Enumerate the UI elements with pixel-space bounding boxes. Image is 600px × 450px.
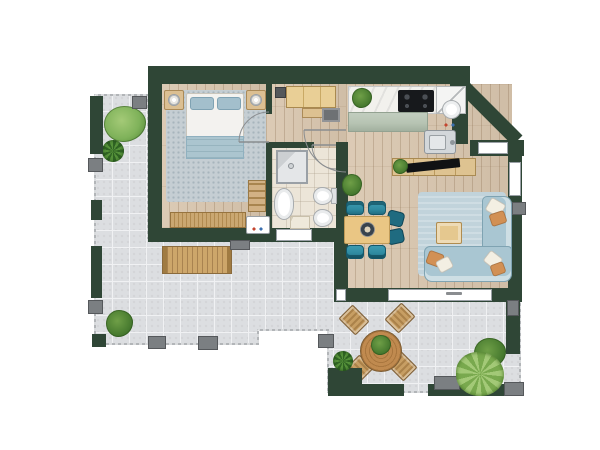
terrace-pillar-left-2 bbox=[88, 300, 103, 314]
terrace-pillar-top bbox=[132, 96, 147, 109]
dining-chair-4 bbox=[368, 245, 386, 259]
dining-chair-3 bbox=[346, 245, 364, 259]
wardrobe bbox=[286, 86, 336, 108]
terrace-pillar-bottom-1 bbox=[148, 336, 166, 349]
lower-pillar-topright bbox=[507, 300, 519, 316]
terrace-wall-left-2 bbox=[91, 200, 102, 220]
bed-pillow-left bbox=[190, 97, 214, 110]
dresser bbox=[170, 212, 246, 228]
bathmat bbox=[290, 216, 310, 229]
wall-bathroom-top bbox=[266, 142, 314, 148]
window-living-small bbox=[336, 289, 346, 301]
terrace-pillar-under-wall bbox=[230, 240, 250, 250]
floor-plan bbox=[0, 0, 600, 450]
terrace-wall-left-1 bbox=[90, 96, 103, 154]
dining-chair-2 bbox=[368, 201, 386, 215]
faucet-symbols bbox=[442, 121, 458, 130]
window-living-large bbox=[388, 289, 492, 301]
dining-chair-1 bbox=[346, 201, 364, 215]
window-bathroom bbox=[276, 229, 312, 241]
kitchen-sink bbox=[424, 130, 456, 154]
bed-pillow-right bbox=[217, 97, 241, 110]
wall-bedroom-right bbox=[266, 84, 272, 114]
lamp-left bbox=[168, 94, 180, 106]
hall-bench bbox=[302, 108, 324, 118]
lamp-right bbox=[250, 94, 262, 106]
terrace-pillar-bottom-2 bbox=[198, 336, 218, 350]
wall-left bbox=[148, 66, 162, 242]
terrace-bench bbox=[162, 246, 232, 274]
lower-starburst-plant bbox=[333, 351, 353, 371]
doormat bbox=[322, 108, 340, 122]
terrace-pillar-bottom-3 bbox=[318, 334, 334, 348]
ladder-shelf bbox=[248, 180, 266, 212]
shower-drain bbox=[288, 163, 294, 169]
washing-machine bbox=[246, 216, 270, 234]
terrace-wall-corner bbox=[92, 334, 106, 347]
round-basin bbox=[442, 100, 461, 119]
wall-unit bbox=[275, 87, 286, 98]
sink-basin bbox=[429, 135, 446, 150]
window-upper-right bbox=[478, 142, 508, 154]
window-dimension-label bbox=[446, 292, 462, 295]
table-centerpiece bbox=[360, 222, 375, 237]
terrace-wall-left-3 bbox=[91, 246, 102, 298]
coffee-table bbox=[436, 222, 462, 244]
terrace-starburst-topleft bbox=[102, 140, 124, 162]
ac-unit bbox=[512, 202, 526, 215]
lower-palm-plant bbox=[456, 352, 504, 396]
cooktop bbox=[398, 90, 434, 112]
bed bbox=[186, 93, 244, 159]
island-counter bbox=[348, 112, 428, 132]
window-right-wall bbox=[509, 162, 521, 196]
wall-top bbox=[148, 66, 462, 84]
terrace-pillar-left-1 bbox=[88, 158, 103, 172]
lower-pillar-bottomright bbox=[504, 382, 524, 396]
sink-faucet bbox=[450, 140, 455, 145]
bed-blanket bbox=[186, 136, 244, 159]
